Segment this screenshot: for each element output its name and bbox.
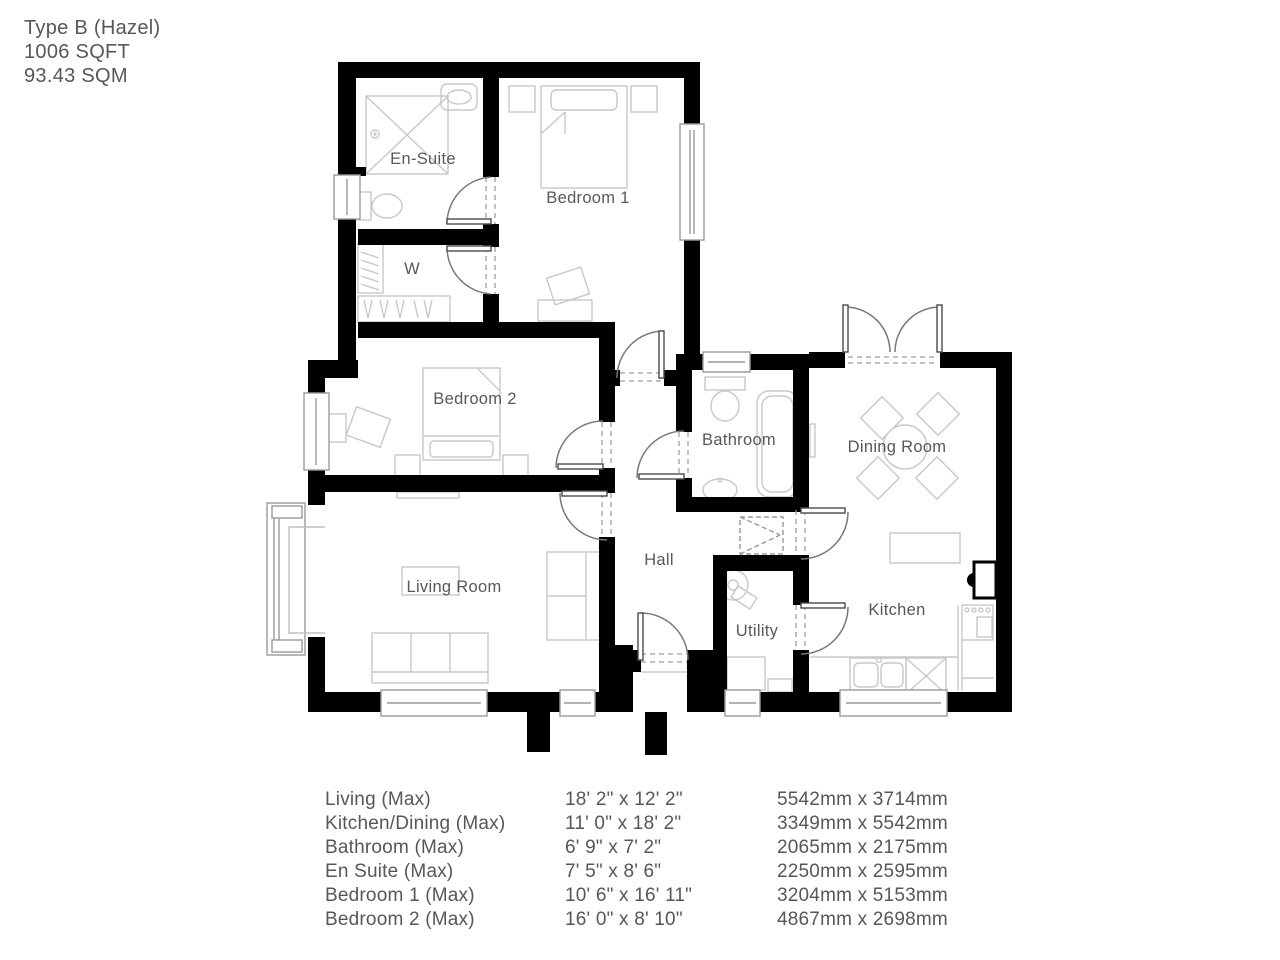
dim-metric: 3349mm x 5542mm <box>777 812 948 836</box>
door-leaf-front-door <box>638 613 643 660</box>
door-leaf-wardrobe <box>447 246 491 251</box>
floor-plan-page: Type B (Hazel) 1006 SQFT 93.43 SQM <box>0 0 1280 960</box>
dim-room: En Suite (Max) <box>325 860 565 884</box>
door-leaf-living-room <box>562 491 607 496</box>
dim-room: Living (Max) <box>325 788 565 812</box>
window-ensuite-left <box>334 175 360 219</box>
dim-metric: 5542mm x 3714mm <box>777 788 948 812</box>
room-label-utility: Utility <box>736 622 779 640</box>
window-bedroom2-left <box>304 393 329 470</box>
door-leaf-dining <box>801 508 845 513</box>
room-label-living: Living Room <box>406 578 501 596</box>
window-utility-bottom <box>725 690 760 716</box>
bay-window-living <box>267 503 325 655</box>
window-bedroom1-right <box>680 124 704 240</box>
dim-room: Bathroom (Max) <box>325 836 565 860</box>
dim-imperial: 7' 5" x 8' 6" <box>565 860 777 884</box>
dim-room: Kitchen/Dining (Max) <box>325 812 565 836</box>
dimension-row: Bathroom (Max) 6' 9" x 7' 2" 2065mm x 21… <box>325 836 948 860</box>
dimension-row: Bedroom 2 (Max) 16' 0" x 8' 10" 4867mm x… <box>325 908 948 932</box>
room-label-bedroom1: Bedroom 1 <box>546 189 629 207</box>
dimension-row: Living (Max) 18' 2" x 12' 2" 5542mm x 37… <box>325 788 948 812</box>
french-door-leaf-right <box>937 305 942 352</box>
dim-metric: 3204mm x 5153mm <box>777 884 948 908</box>
door-leaf-kitchen <box>801 603 845 608</box>
dim-metric: 2250mm x 2595mm <box>777 860 948 884</box>
room-label-bedroom2: Bedroom 2 <box>433 390 516 408</box>
dim-imperial: 11' 0" x 18' 2" <box>565 812 777 836</box>
room-label-bathroom: Bathroom <box>702 431 776 449</box>
door-leaf-bedroom1 <box>659 331 664 378</box>
dim-room: Bedroom 2 (Max) <box>325 908 565 932</box>
door-leaf-ensuite <box>447 219 491 224</box>
window-living-bottom-small <box>560 690 595 716</box>
room-label-kitchen: Kitchen <box>868 601 925 619</box>
window-kitchen-bottom <box>840 690 947 716</box>
dim-metric: 2065mm x 2175mm <box>777 836 948 860</box>
door-leaf-bedroom2 <box>558 464 603 469</box>
dimensions-table: Living (Max) 18' 2" x 12' 2" 5542mm x 37… <box>325 788 948 932</box>
room-label-dining: Dining Room <box>848 438 947 456</box>
window-living-bottom-large <box>381 690 487 716</box>
dimension-row: Kitchen/Dining (Max) 11' 0" x 18' 2" 334… <box>325 812 948 836</box>
hall-cupboard <box>740 517 783 554</box>
door-leaf-bathroom <box>639 474 684 479</box>
dim-room: Bedroom 1 (Max) <box>325 884 565 908</box>
dim-imperial: 6' 9" x 7' 2" <box>565 836 777 860</box>
dim-imperial: 10' 6" x 16' 11" <box>565 884 777 908</box>
dim-metric: 4867mm x 2698mm <box>777 908 948 932</box>
window-bathroom-top <box>703 352 750 372</box>
dim-imperial: 18' 2" x 12' 2" <box>565 788 777 812</box>
french-door-leaf-left <box>843 305 848 352</box>
room-label-wardrobe: W <box>404 260 420 278</box>
dimension-row: En Suite (Max) 7' 5" x 8' 6" 2250mm x 25… <box>325 860 948 884</box>
dimension-row: Bedroom 1 (Max) 10' 6" x 16' 11" 3204mm … <box>325 884 948 908</box>
dim-imperial: 16' 0" x 8' 10" <box>565 908 777 932</box>
wardrobe-fittings <box>358 243 450 322</box>
oven-icon <box>967 562 996 598</box>
door-openings <box>486 177 937 662</box>
bedroom2-furniture <box>328 368 528 477</box>
room-label-ensuite: En-Suite <box>390 150 456 168</box>
room-label-hall: Hall <box>644 551 674 569</box>
